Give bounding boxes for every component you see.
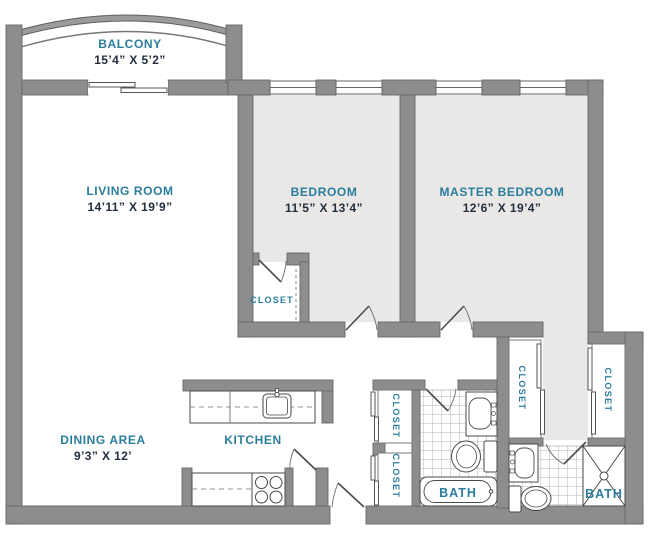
room-name: BEDROOM <box>254 185 394 201</box>
wall-master-closet-right-bottom <box>588 438 625 446</box>
wall-bedroom-closet-right <box>300 262 309 322</box>
hall-bath-label: BATH <box>428 486 488 500</box>
wall-kitchen-mid-stub <box>285 468 293 506</box>
wall-exterior-bottom-right <box>366 506 643 524</box>
room-dimensions: 15’4” X 5’2” <box>30 53 230 69</box>
living-room-label: LIVING ROOM 14’11” X 19’9” <box>30 184 230 216</box>
room-name: BALCONY <box>30 37 230 53</box>
master-bath-sink <box>509 444 538 482</box>
wall-kitchen-right <box>316 468 328 506</box>
kitchen-label: KITCHEN <box>193 433 313 449</box>
master-bath-toilet <box>509 486 551 512</box>
master-closet-right-label: CLOSET <box>603 360 613 420</box>
stove <box>252 473 285 506</box>
wall-top-4 <box>482 80 520 95</box>
window <box>336 81 382 94</box>
wall-bedrooms-bottom-3 <box>473 322 543 337</box>
bedroom-closet-label: CLOSET <box>242 295 302 305</box>
room-dimensions: 11’5” X 13’4” <box>254 201 394 217</box>
bedroom-closet-floor <box>253 262 300 322</box>
hall-closet-lower-label: CLOSET <box>391 446 401 506</box>
balcony-sliding-door <box>88 81 168 95</box>
room-dimensions: 9’3” X 12’ <box>18 449 188 465</box>
master-bedroom-label: MASTER BEDROOM 12’6” X 19’4” <box>412 185 592 217</box>
room-name: MASTER BEDROOM <box>412 185 592 201</box>
room-name: DINING AREA <box>18 433 188 449</box>
hall-bath-toilet <box>452 441 498 472</box>
wall-exterior-bottom-left <box>6 506 330 524</box>
window <box>436 81 482 94</box>
kitchen-door <box>290 449 316 470</box>
wall-kitchen-top <box>183 380 333 391</box>
wall-kitchen-top-stub <box>322 391 333 423</box>
wall-kitchen-left-stub <box>182 468 192 506</box>
hall-closet-upper-label: CLOSET <box>391 386 401 446</box>
wall-bedrooms-bottom-1 <box>238 322 345 337</box>
room-name: KITCHEN <box>193 433 313 449</box>
master-hall-floor <box>543 322 588 440</box>
room-name: LIVING ROOM <box>30 184 230 200</box>
wall-top-2 <box>316 80 336 95</box>
room-dimensions: 12’6” X 19’4” <box>412 201 592 217</box>
wall-bedroom-closet-top-1 <box>253 253 259 265</box>
window <box>520 81 566 94</box>
hall-bath-sink <box>466 392 497 436</box>
window <box>270 81 316 94</box>
wall-top-3 <box>382 80 436 95</box>
master-bath-label: BATH <box>574 487 634 501</box>
wall-top-1 <box>228 80 270 95</box>
wall-bedrooms-bottom-2 <box>378 322 440 337</box>
wall-closet-bath <box>412 390 420 506</box>
bedroom-label: BEDROOM 11’5” X 13’4” <box>254 185 394 217</box>
entry-door <box>332 483 364 507</box>
room-dimensions: 14’11” X 19’9” <box>30 200 230 216</box>
floor-plan: BALCONY 15’4” X 5’2” LIVING ROOM 14’11” … <box>0 0 651 538</box>
dining-area-label: DINING AREA 9’3” X 12’ <box>18 433 188 465</box>
master-closet-left-label: CLOSET <box>517 358 527 418</box>
balcony-label: BALCONY 15’4” X 5’2” <box>30 37 230 69</box>
wall-balcony-b <box>168 80 228 95</box>
wall-balcony-a <box>22 80 88 95</box>
wall-hall-master <box>497 337 509 508</box>
wall-bath-top-2 <box>458 380 497 390</box>
